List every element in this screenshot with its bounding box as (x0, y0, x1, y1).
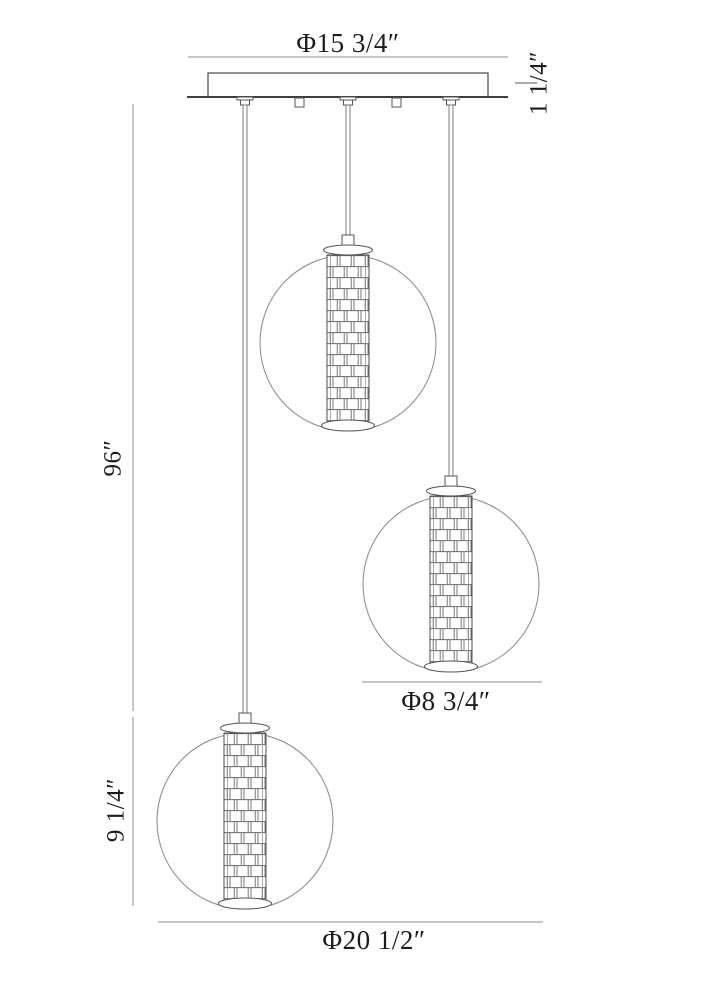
label-pendant-height: 9 1/4″ (103, 778, 130, 842)
dimensions (133, 83, 543, 922)
label-drop-length: 96″ (100, 440, 127, 477)
label-globe-diameter: Φ8 3/4″ (401, 686, 490, 716)
label-canopy-height: 1 1/4″ (526, 51, 553, 115)
cord-connector-3 (443, 97, 459, 105)
cord-middle-pendant (346, 105, 350, 235)
mounting-nub-left (295, 98, 304, 107)
cord-right-pendant (449, 105, 453, 476)
cord-left-pendant (243, 105, 247, 713)
pendant-light-dimension-diagram: Φ15 3/4″ 1 1/4″ 96″ 9 1/4″ Φ8 3/4″ Φ20 1… (0, 0, 707, 1000)
mounting-nub-right (392, 98, 401, 107)
cord-connector-1 (237, 97, 253, 105)
canopy-plate (208, 73, 488, 97)
cord-connector-2 (340, 97, 356, 105)
label-canopy-diameter: Φ15 3/4″ (296, 28, 399, 58)
pendant-globe-middle (363, 476, 539, 672)
canopy (187, 57, 508, 107)
label-overall-width: Φ20 1/2″ (322, 925, 425, 955)
pendant-globe-top (260, 235, 436, 431)
pendant-globe-bottom (157, 713, 333, 909)
